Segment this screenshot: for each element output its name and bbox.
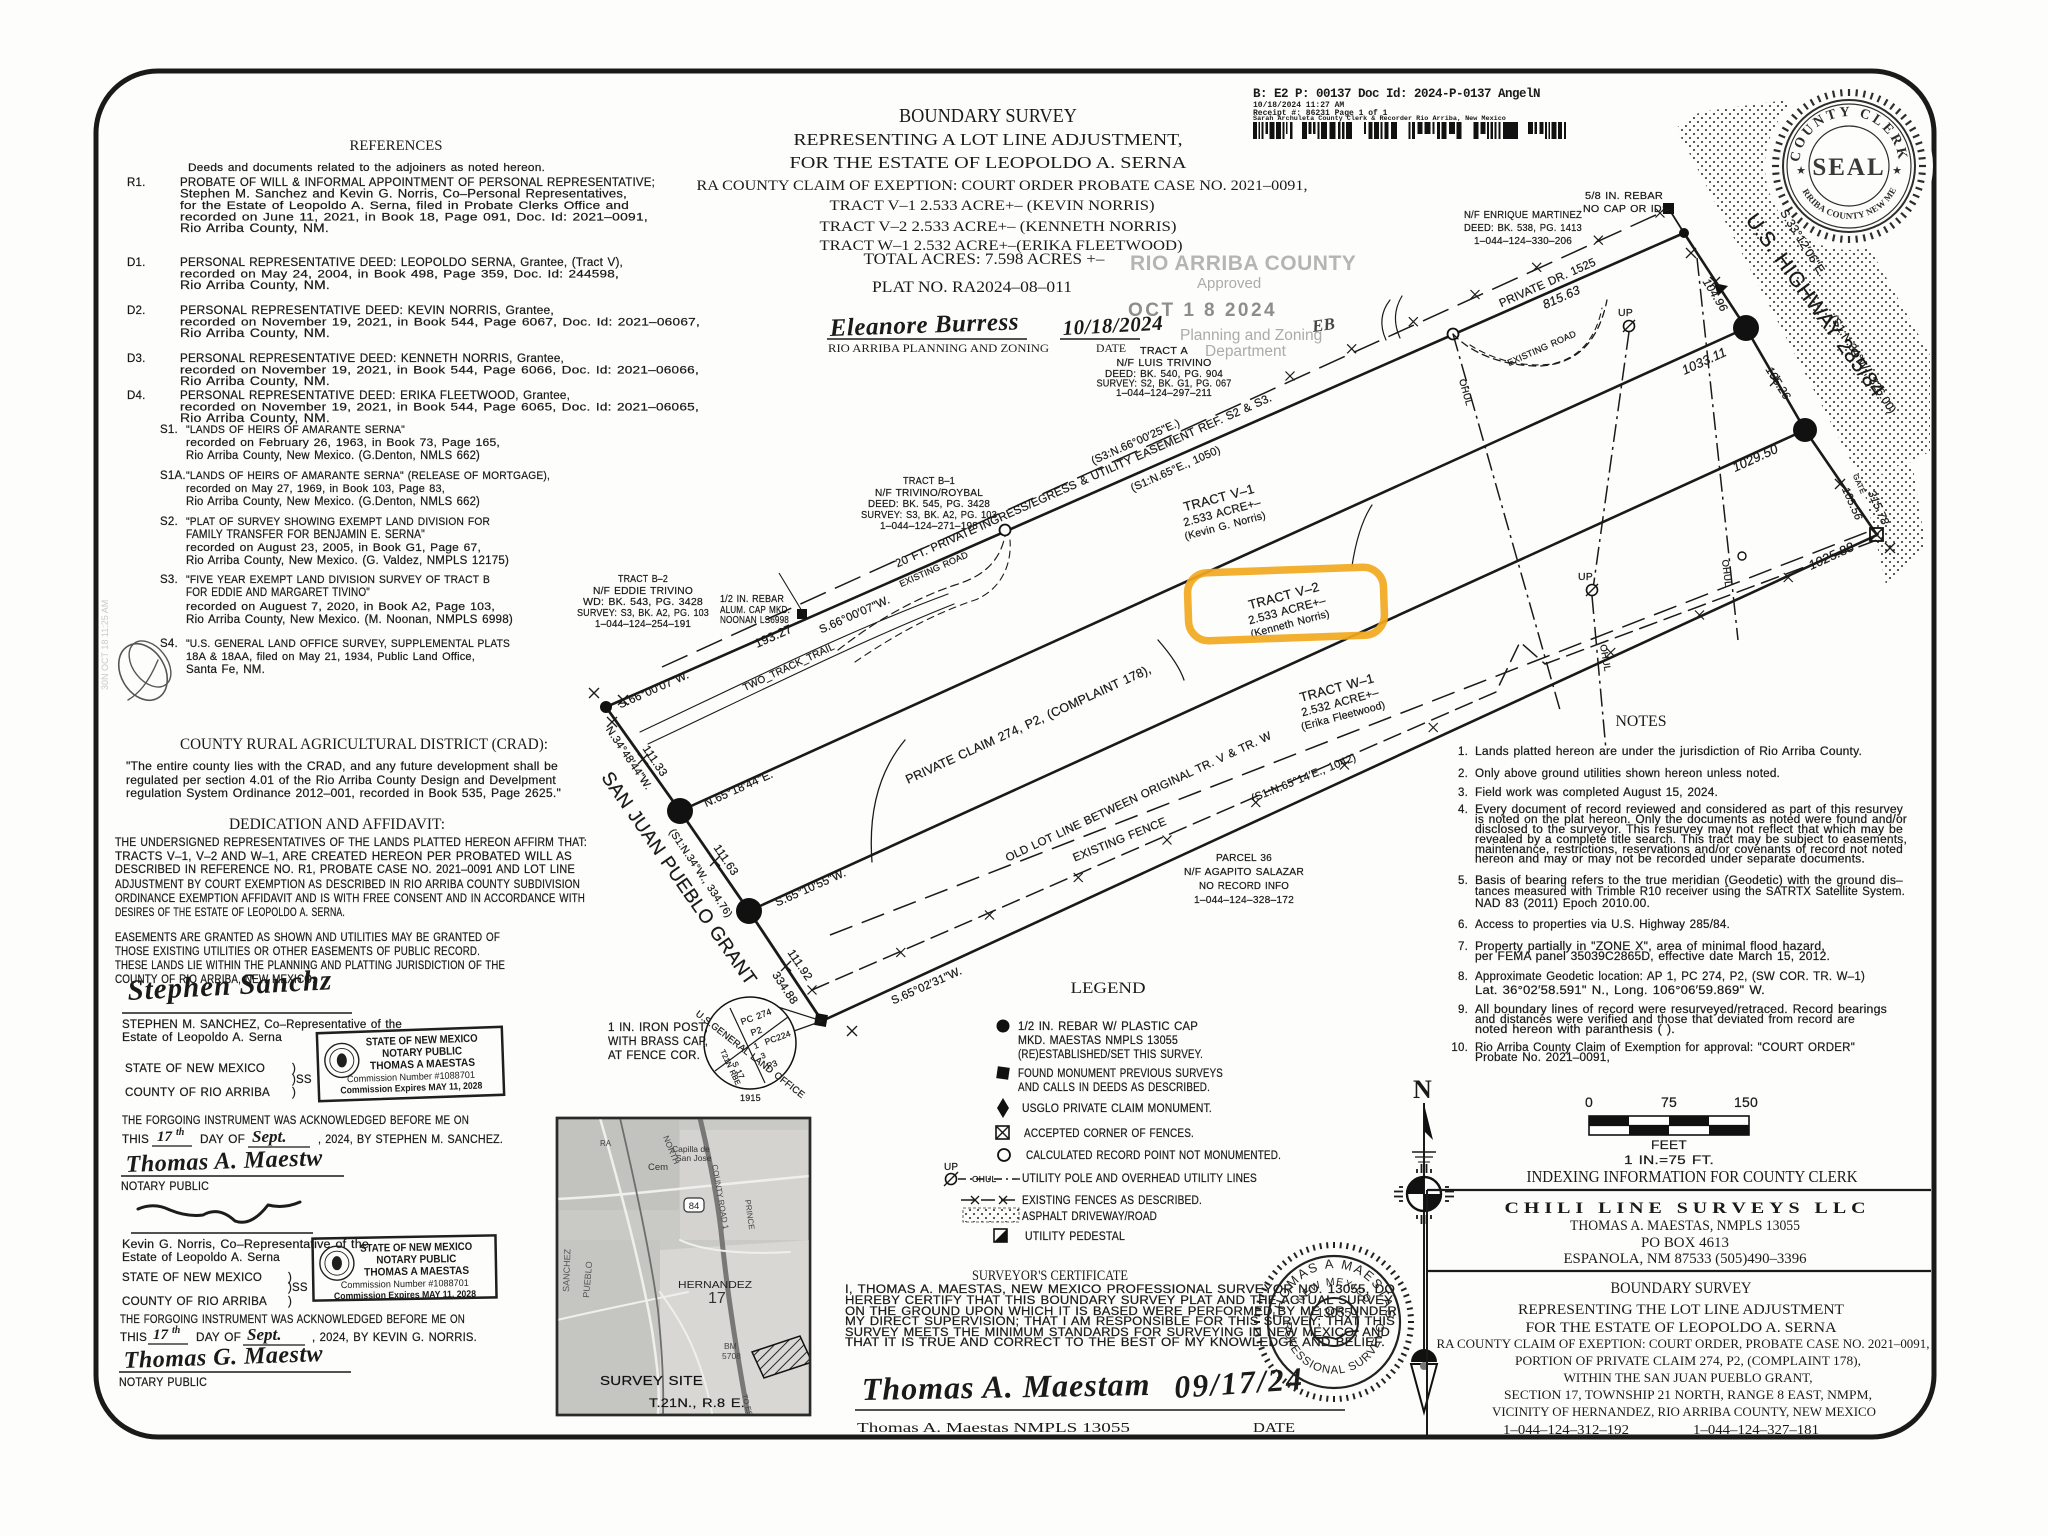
svg-text:recorded on May 24, 2004,: recorded on May 24, 2004, in Book 498, P…	[180, 269, 619, 281]
svg-text:)SS: )SS	[292, 1074, 312, 1086]
svg-text:S1A.: S1A.	[160, 470, 186, 482]
svg-text:NO RECORD INFO: NO RECORD INFO	[1199, 880, 1289, 892]
svg-text:8.: 8.	[1458, 971, 1468, 983]
svg-text:5708: 5708	[722, 1351, 741, 1361]
svg-text:PO BOX 4613: PO BOX 4613	[1641, 1235, 1729, 1251]
svg-text:150: 150	[1734, 1094, 1758, 1110]
svg-text:CALCULATED RECORD POINT NOT: CALCULATED RECORD POINT NOT MONUMENTED.	[1026, 1150, 1281, 1162]
svg-text:AND CALLS IN DEEDS AS DES: AND CALLS IN DEEDS AS DESCRIBED.	[1018, 1082, 1210, 1094]
svg-text:THIS: THIS	[122, 1134, 149, 1146]
svg-text:Kevin G. Norris, Co–Represe: Kevin G. Norris, Co–Representative of th…	[122, 1239, 369, 1251]
svg-text:Rio Arriba County, New Mex: Rio Arriba County, New Mexico. (G.Denton…	[186, 496, 480, 508]
svg-text:recorded on Auguest 7, 202: recorded on Auguest 7, 2020, in Book A2,…	[186, 601, 495, 613]
svg-text:Sept.: Sept.	[247, 1325, 281, 1344]
svg-text:DATE: DATE	[1096, 341, 1126, 355]
svg-text:TRACT A: TRACT A	[1140, 345, 1188, 357]
svg-text:0: 0	[1585, 1094, 1593, 1110]
svg-text:FOR THE ESTATE OF LEOPOLDO: FOR THE ESTATE OF LEOPOLDO A. SERNA	[1526, 1320, 1838, 1336]
svg-text:SEAL: SEAL	[1812, 154, 1885, 181]
svg-text:★: ★	[1796, 165, 1806, 177]
svg-text:1–044–124–254–191: 1–044–124–254–191	[595, 618, 691, 630]
svg-text:Rio Arriba County, NM.: Rio Arriba County, NM.	[180, 280, 330, 292]
svg-text:1–044–124–330–206: 1–044–124–330–206	[1474, 235, 1572, 247]
svg-text:Estate of Leopoldo A. Sern: Estate of Leopoldo A. Serna	[122, 1032, 282, 1044]
svg-text:TRACTS V–1, V–2 AND W–1,: TRACTS V–1, V–2 AND W–1, ARE CREATED HER…	[115, 851, 572, 863]
svg-text:Rio Arriba County, NM.: Rio Arriba County, NM.	[180, 328, 330, 340]
svg-text:6.: 6.	[1458, 919, 1468, 931]
svg-text:THOMAS A. MAESTAS, NMPLS 1: THOMAS A. MAESTAS, NMPLS 13055	[1570, 1218, 1800, 1234]
svg-text:Probate No. 2021–0091,: Probate No. 2021–0091,	[1475, 1052, 1610, 1064]
svg-text:): )	[292, 1087, 296, 1099]
svg-text:TRACT V–1 2.533 ACRE+– (K: TRACT V–1 2.533 ACRE+– (KEVIN NORRIS)	[830, 198, 1155, 214]
svg-text:RA: RA	[600, 1139, 612, 1148]
svg-text:FOR EDDIE AND MARGARET TIV: FOR EDDIE AND MARGARET TIVINO"	[186, 587, 370, 599]
svg-text:S1.: S1.	[160, 424, 178, 436]
svg-text:Only above ground utilities: Only above ground utilities shown hereon…	[1475, 768, 1780, 780]
svg-text:COUNTY OF RIO ARRIBA: COUNTY OF RIO ARRIBA	[122, 1296, 267, 1308]
svg-text:Santa Fe, NM.: Santa Fe, NM.	[186, 664, 265, 676]
svg-text:Approximate Geodetic locatio: Approximate Geodetic location: AP 1, PC …	[1475, 971, 1865, 983]
svg-text:recorded on November 19, 2: recorded on November 19, 2021, in Book 5…	[180, 402, 699, 414]
svg-text:NAD 83 (2011) Epoch 2010.0: NAD 83 (2011) Epoch 2010.00.	[1475, 898, 1650, 910]
svg-text:D3.: D3.	[127, 353, 146, 365]
svg-text:9.: 9.	[1458, 1004, 1468, 1016]
svg-text:MKD. MAESTAS NMPLS 13055: MKD. MAESTAS NMPLS 13055	[1018, 1035, 1178, 1047]
svg-text:Deeds and documents related to: Deeds and documents related to the adjoi…	[188, 162, 545, 174]
svg-text:SURVEYOR'S CERTIFICATE: SURVEYOR'S CERTIFICATE	[972, 1268, 1128, 1284]
svg-text:3.: 3.	[1458, 787, 1468, 799]
svg-text:Rio Arriba County, NM.: Rio Arriba County, NM.	[180, 376, 330, 388]
svg-text:NOTARY PUBLIC: NOTARY PUBLIC	[119, 1377, 207, 1389]
svg-text:TOTAL ACRES: 7.598 ACRES +: TOTAL ACRES: 7.598 ACRES +–	[864, 251, 1105, 268]
svg-text:Cem: Cem	[648, 1162, 668, 1173]
svg-text:BOUNDARY SURVEY: BOUNDARY SURVEY	[899, 105, 1077, 127]
svg-text:S3.: S3.	[160, 574, 178, 586]
svg-text:N/F AGAPITO SALAZAR: N/F AGAPITO SALAZAR	[1184, 866, 1304, 878]
svg-text:recorded on November 19, 2: recorded on November 19, 2021, in Book 5…	[180, 317, 700, 329]
svg-text:DESIRES OF THE ESTATE OF: DESIRES OF THE ESTATE OF LEOPOLDO A. SER…	[115, 907, 345, 919]
svg-text:S2.: S2.	[160, 516, 178, 528]
svg-text:recorded on May 27, 1969,: recorded on May 27, 1969, in Book 103, P…	[186, 483, 445, 495]
svg-text:th: th	[172, 1325, 181, 1336]
svg-text:7.: 7.	[1458, 941, 1468, 953]
svg-text:UTILITY PEDESTAL: UTILITY PEDESTAL	[1025, 1231, 1125, 1243]
svg-text:): )	[288, 1296, 292, 1308]
svg-text:2.: 2.	[1458, 768, 1468, 780]
svg-text:TRACT B–1: TRACT B–1	[903, 475, 955, 487]
svg-text:TRACT V–2 2.533 ACRE+– (K: TRACT V–2 2.533 ACRE+– (KENNETH NORRIS)	[820, 219, 1177, 235]
svg-text:REPRESENTING THE LOT LINE: REPRESENTING THE LOT LINE ADJUSTMENT	[1518, 1302, 1844, 1318]
svg-text:T.21N., R.8 E.: T.21N., R.8 E.	[649, 1396, 745, 1410]
svg-text:PORTION OF PRIVATE CLAIM 2: PORTION OF PRIVATE CLAIM 274, P2, (COMPL…	[1515, 1353, 1861, 1368]
svg-text:EASEMENTS ARE GRANTED AS S: EASEMENTS ARE GRANTED AS SHOWN AND UTILI…	[115, 932, 500, 944]
svg-text:REPRESENTING A LOT LINE AD: REPRESENTING A LOT LINE ADJUSTMENT,	[794, 130, 1183, 149]
svg-text:STATE OF NEW MEXICO: STATE OF NEW MEXICO	[122, 1272, 262, 1284]
svg-text:B: E2 P: 00137 Doc Id: 2024-P-: B: E2 P: 00137 Doc Id: 2024-P-0137 Angel…	[1253, 87, 1540, 101]
svg-text:THAT IT IS TRUE AND CORRE: THAT IT IS TRUE AND CORRECT TO THE BEST …	[845, 1337, 1385, 1349]
svg-text:FOUND MONUMENT PREVIOUS SUR: FOUND MONUMENT PREVIOUS SURVEYS	[1018, 1068, 1223, 1080]
svg-text:tances measured with Trimbl: tances measured with Trimble R10 receive…	[1475, 886, 1905, 898]
svg-text:ESPANOLA, NM 87533 (505)490: ESPANOLA, NM 87533 (505)490–3396	[1564, 1251, 1807, 1267]
svg-text:Approved: Approved	[1197, 275, 1261, 292]
svg-text:1 IN. IRON POST,: 1 IN. IRON POST,	[608, 1022, 708, 1034]
svg-text:Stephen M. Sanchez and Kev: Stephen M. Sanchez and Kevin G. Norris, …	[180, 189, 627, 201]
svg-text:, 2024, BY STEPHEN M. SAN: , 2024, BY STEPHEN M. SANCHEZ.	[318, 1134, 503, 1146]
svg-text:Thomas A. Maestam: Thomas A. Maestam	[861, 1366, 1150, 1407]
svg-text:Planning and Zoning: Planning and Zoning	[1180, 327, 1322, 344]
svg-text:"LANDS OF HEIRS OF AMARANT: "LANDS OF HEIRS OF AMARANTE SERNA"	[186, 424, 405, 436]
svg-text:LEGEND: LEGEND	[1071, 980, 1146, 997]
svg-text:"PLAT OF SURVEY SHOWING EX: "PLAT OF SURVEY SHOWING EXEMPT LAND DIVI…	[186, 516, 490, 528]
svg-text:th: th	[176, 1127, 185, 1138]
svg-text:S4.: S4.	[160, 638, 178, 650]
svg-text:EB: EB	[1310, 314, 1336, 336]
svg-text:UP: UP	[944, 1162, 958, 1173]
svg-text:SECTION 17, TOWNSHIP 21 NO: SECTION 17, TOWNSHIP 21 NORTH, RANGE 8 E…	[1504, 1387, 1872, 1402]
svg-text:PERSONAL REPRESENTATIVE DEED: PERSONAL REPRESENTATIVE DEED: KEVIN NORR…	[180, 305, 554, 317]
svg-text:DAY OF: DAY OF	[200, 1134, 245, 1146]
svg-text:THOMAS A MAESTAS: THOMAS A MAESTAS	[364, 1265, 469, 1279]
svg-text:PERSONAL REPRESENTATIVE DEED: PERSONAL REPRESENTATIVE DEED: ERIKA FLEE…	[180, 390, 570, 402]
svg-text:THOSE EXISTING UTILITIES OR: THOSE EXISTING UTILITIES OR OTHER EASEME…	[115, 946, 480, 958]
svg-text:RIO ARRIBA COUNTY: RIO ARRIBA COUNTY	[1130, 252, 1356, 275]
svg-text:EXISTING FENCES AS DESCRIBE: EXISTING FENCES AS DESCRIBED.	[1022, 1195, 1202, 1207]
svg-text:(RE)ESTABLISHED/SET THIS SUR: (RE)ESTABLISHED/SET THIS SURVEY.	[1018, 1049, 1203, 1061]
svg-text:Rio Arriba County, New Mex: Rio Arriba County, New Mexico. (M. Noona…	[186, 614, 513, 626]
svg-text:PERSONAL REPRESENTATIVE DEED: PERSONAL REPRESENTATIVE DEED: KENNETH NO…	[180, 353, 564, 365]
svg-text:OCT 1: OCT 1	[1128, 300, 1196, 321]
svg-text:1–044–124–327–181: 1–044–124–327–181	[1693, 1422, 1819, 1437]
svg-text:WITHIN THE SAN JUAN PUEBLO: WITHIN THE SAN JUAN PUEBLO GRANT,	[1564, 1370, 1813, 1385]
svg-text:Sept.: Sept.	[252, 1127, 286, 1146]
svg-text:SURVEY SITE: SURVEY SITE	[600, 1373, 703, 1388]
svg-text:FOR THE ESTATE OF LEOPOLDO: FOR THE ESTATE OF LEOPOLDO A. SERNA	[790, 153, 1188, 172]
svg-text:NOONAN LS6998: NOONAN LS6998	[720, 614, 789, 626]
svg-text:TRACT B–2: TRACT B–2	[618, 573, 668, 585]
svg-text:WITH BRASS CAP,: WITH BRASS CAP,	[608, 1036, 708, 1048]
svg-text:THIS: THIS	[120, 1332, 147, 1344]
svg-text:PROBATE OF WILL & INFORMAL: PROBATE OF WILL & INFORMAL APPOINTMENT O…	[180, 177, 655, 189]
svg-text:per FEMA panel 35039C2865D,: per FEMA panel 35039C2865D, effective da…	[1475, 951, 1830, 963]
svg-text:1–044–124–312–192: 1–044–124–312–192	[1503, 1422, 1629, 1437]
svg-text:Field work was completed A: Field work was completed August 15, 2024…	[1475, 787, 1718, 799]
svg-text:Estate of Leopoldo A. Sern: Estate of Leopoldo A. Serna	[122, 1252, 280, 1264]
svg-text:1 IN.=75 FT.: 1 IN.=75 FT.	[1624, 1153, 1714, 1167]
svg-text:SANCHEZ: SANCHEZ	[561, 1248, 573, 1292]
svg-text:PERSONAL REPRESENTATIVE DEED: PERSONAL REPRESENTATIVE DEED: LEOPOLDO S…	[180, 257, 623, 269]
svg-text:Sarah Archuleta County Clerk &: Sarah Archuleta County Clerk & Recorder …	[1253, 115, 1506, 123]
svg-text:THE UNDERSIGNED REPRESENTATI: THE UNDERSIGNED REPRESENTATIVES OF THE L…	[115, 837, 587, 849]
svg-text:C H I L I L I N E S U R V: C H I L I L I N E S U R V E Y S L L C	[1505, 1200, 1866, 1217]
svg-text:recorded on November 19, 2: recorded on November 19, 2021, in Book 5…	[180, 365, 699, 377]
svg-text:30N OCT 18 11:25 AM: 30N OCT 18 11:25 AM	[100, 600, 110, 690]
svg-text:5/8 IN. REBAR: 5/8 IN. REBAR	[1585, 190, 1663, 202]
svg-text:18A & 18AA, filed on May: 18A & 18AA, filed on May 21, 1934, Publi…	[186, 651, 475, 663]
svg-text:recorded on June 11, 2021,: recorded on June 11, 2021, in Book 18, P…	[180, 212, 648, 224]
svg-text:Department: Department	[1205, 343, 1287, 360]
svg-text:ADJUSTMENT BY COURT EXEMPTI: ADJUSTMENT BY COURT EXEMPTION AS DESCRIB…	[115, 879, 580, 891]
svg-text:FAMILY TRANSFER FOR BENJAMI: FAMILY TRANSFER FOR BENJAMIN E. SERNA"	[186, 529, 425, 541]
svg-text:regulation System Ordinance: regulation System Ordinance 2012–001, re…	[126, 786, 561, 800]
svg-text:10.: 10.	[1451, 1042, 1468, 1054]
svg-text:UTILITY POLE AND OVERHEAD: UTILITY POLE AND OVERHEAD UTILITY LINES	[1022, 1173, 1257, 1185]
svg-text:PLAT NO. RA2024–08–011: PLAT NO. RA2024–08–011	[872, 279, 1072, 296]
svg-text:DEED: BK. 538, PG. 1413: DEED: BK. 538, PG. 1413	[1464, 222, 1582, 234]
svg-text:Rio Arriba County, New Mex: Rio Arriba County, New Mexico. (G. Valde…	[186, 555, 509, 567]
svg-text:RA COUNTY CLAIM OF EXEPTIO: RA COUNTY CLAIM OF EXEPTION: COURT ORDER…	[1437, 1337, 1930, 1351]
svg-text:1–044–124–271–198: 1–044–124–271–198	[880, 520, 978, 532]
svg-text:COUNTY RURAL AGRICULTURAL D: COUNTY RURAL AGRICULTURAL DISTRICT (CRAD…	[180, 736, 548, 753]
svg-text:17: 17	[157, 1129, 173, 1145]
svg-text:DEDICATION AND AFFIDAVIT:: DEDICATION AND AFFIDAVIT:	[229, 816, 445, 833]
svg-text:RA COUNTY CLAIM OF EXEPTIO: RA COUNTY CLAIM OF EXEPTION: COURT ORDER…	[697, 178, 1308, 194]
svg-text:UP: UP	[1618, 307, 1633, 319]
svg-text:1.: 1.	[1458, 746, 1468, 758]
svg-text:N: N	[1413, 1075, 1432, 1104]
svg-text:Access to properties via U: Access to properties via U.S. Highway 28…	[1475, 919, 1730, 931]
svg-text:ASPHALT DRIVEWAY/ROAD: ASPHALT DRIVEWAY/ROAD	[1022, 1211, 1157, 1223]
svg-text:D4.: D4.	[127, 390, 146, 402]
svg-text:4.: 4.	[1458, 804, 1468, 816]
svg-text:Thomas A. Maestas NMPLS: Thomas A. Maestas NMPLS 13055	[857, 1421, 1130, 1436]
svg-text:NO CAP OR ID:: NO CAP OR ID:	[1583, 203, 1665, 215]
svg-text:)SS: )SS	[288, 1282, 308, 1294]
svg-text:THE FORGOING INSTRUMENT WAS: THE FORGOING INSTRUMENT WAS ACKNOWLEDGED…	[122, 1115, 469, 1127]
svg-text:1–044–124–297–211: 1–044–124–297–211	[1116, 387, 1212, 399]
svg-text:1/2 IN. REBAR W/ PLASTIC: 1/2 IN. REBAR W/ PLASTIC CAP	[1018, 1021, 1198, 1033]
svg-text:75: 75	[1661, 1094, 1677, 1110]
svg-text:N/F ENRIQUE MARTINEZ: N/F ENRIQUE MARTINEZ	[1464, 209, 1582, 221]
svg-text:RIO ARRIBA PLANNING AND ZO: RIO ARRIBA PLANNING AND ZONING	[828, 341, 1049, 355]
svg-text:STEPHEN M. SANCHEZ, Co–Repr: STEPHEN M. SANCHEZ, Co–Representative of…	[122, 1019, 402, 1031]
svg-text:noted hereon with paranthes: noted hereon with paranthesis ( ).	[1475, 1024, 1675, 1036]
svg-text:D2.: D2.	[127, 305, 146, 317]
svg-text:"U.S. GENERAL LAND OFFICE: "U.S. GENERAL LAND OFFICE SURVEY, SUPPLE…	[186, 638, 510, 650]
svg-text:13055: 13055	[1317, 1306, 1352, 1320]
svg-text:DATE: DATE	[1253, 1421, 1295, 1436]
svg-text:D1.: D1.	[127, 257, 146, 269]
svg-text:ACCEPTED CORNER OF FENCES.: ACCEPTED CORNER OF FENCES.	[1024, 1128, 1194, 1140]
svg-text:R1.: R1.	[127, 177, 146, 189]
svg-text:for the Estate of Leopoldo: for the Estate of Leopoldo A. Serna, fil…	[180, 200, 629, 212]
svg-text:Rio Arriba County, NM.: Rio Arriba County, NM.	[180, 223, 329, 235]
svg-text:OHUL: OHUL	[972, 1174, 996, 1184]
svg-text:ORDINANCE EXEMPTION AFFIDAVI: ORDINANCE EXEMPTION AFFIDAVIT AND IS WIT…	[115, 893, 585, 905]
svg-text:8 2024: 8 2024	[1204, 300, 1277, 321]
svg-text:USGLO PRIVATE CLAIM MONUMEN: USGLO PRIVATE CLAIM MONUMENT.	[1022, 1103, 1212, 1115]
svg-text:UP: UP	[1578, 571, 1593, 583]
svg-text:REFERENCES: REFERENCES	[350, 138, 443, 154]
svg-text:Lands platted hereon are u: Lands platted hereon are under the juris…	[1475, 746, 1862, 758]
svg-text:BOUNDARY SURVEY: BOUNDARY SURVEY	[1611, 1280, 1752, 1297]
svg-text:17: 17	[708, 1290, 726, 1307]
svg-text:AT FENCE COR.: AT FENCE COR.	[608, 1050, 700, 1062]
svg-text:, 2024, BY KEVIN G. NORRI: , 2024, BY KEVIN G. NORRIS.	[312, 1332, 477, 1344]
svg-text:INDEXING INFORMATION FOR CO: INDEXING INFORMATION FOR COUNTY CLERK	[1527, 1167, 1859, 1186]
svg-text:1915: 1915	[740, 1093, 761, 1103]
svg-text:"LANDS OF HEIRS OF AMARANT: "LANDS OF HEIRS OF AMARANTE SERNA" (RELE…	[186, 470, 550, 482]
svg-text:FEET: FEET	[1651, 1138, 1688, 1152]
svg-text:hereon and may or may not: hereon and may or may not be recorded un…	[1475, 854, 1865, 866]
svg-text:COUNTY OF RIO ARRIBA: COUNTY OF RIO ARRIBA	[125, 1087, 270, 1099]
svg-text:NOTARY PUBLIC: NOTARY PUBLIC	[121, 1181, 209, 1193]
svg-text:5.: 5.	[1458, 875, 1468, 887]
svg-text:"The entire county lies wi: "The entire county lies with the CRAD, a…	[126, 759, 558, 773]
svg-text:PARCEL 36: PARCEL 36	[1216, 852, 1272, 864]
svg-text:DESCRIBED IN REFERENCE NO.: DESCRIBED IN REFERENCE NO. R1, PROBATE C…	[115, 864, 575, 876]
svg-text:1–044–124–328–172: 1–044–124–328–172	[1194, 894, 1294, 906]
svg-text:84: 84	[689, 1201, 700, 1212]
svg-text:Lat. 36°02′58.591" N., Lon: Lat. 36°02′58.591" N., Long. 106°06′59.8…	[1475, 985, 1765, 997]
svg-text:DAY OF: DAY OF	[196, 1332, 241, 1344]
svg-text:★: ★	[1892, 165, 1902, 177]
svg-text:"FIVE YEAR EXEMPT LAND DIV: "FIVE YEAR EXEMPT LAND DIVISION SURVEY O…	[186, 574, 490, 586]
svg-text:recorded on August 23, 200: recorded on August 23, 2005, in Book G1,…	[186, 542, 481, 554]
svg-text:VICINITY OF HERNANDEZ, RIO: VICINITY OF HERNANDEZ, RIO ARRIBA COUNTY…	[1492, 1404, 1876, 1419]
svg-text:BM: BM	[724, 1341, 737, 1351]
svg-text:recorded on February 26, 1: recorded on February 26, 1963, in Book 7…	[186, 437, 500, 449]
svg-text:NOTES: NOTES	[1616, 713, 1667, 730]
svg-text:17: 17	[153, 1327, 169, 1343]
svg-text:regulated per section 4.01: regulated per section 4.01 of the Rio Ar…	[126, 773, 556, 787]
svg-text:Rio Arriba County, New Mex: Rio Arriba County, New Mexico. (G.Denton…	[186, 450, 480, 462]
svg-text:STATE OF NEW MEXICO: STATE OF NEW MEXICO	[125, 1063, 265, 1075]
